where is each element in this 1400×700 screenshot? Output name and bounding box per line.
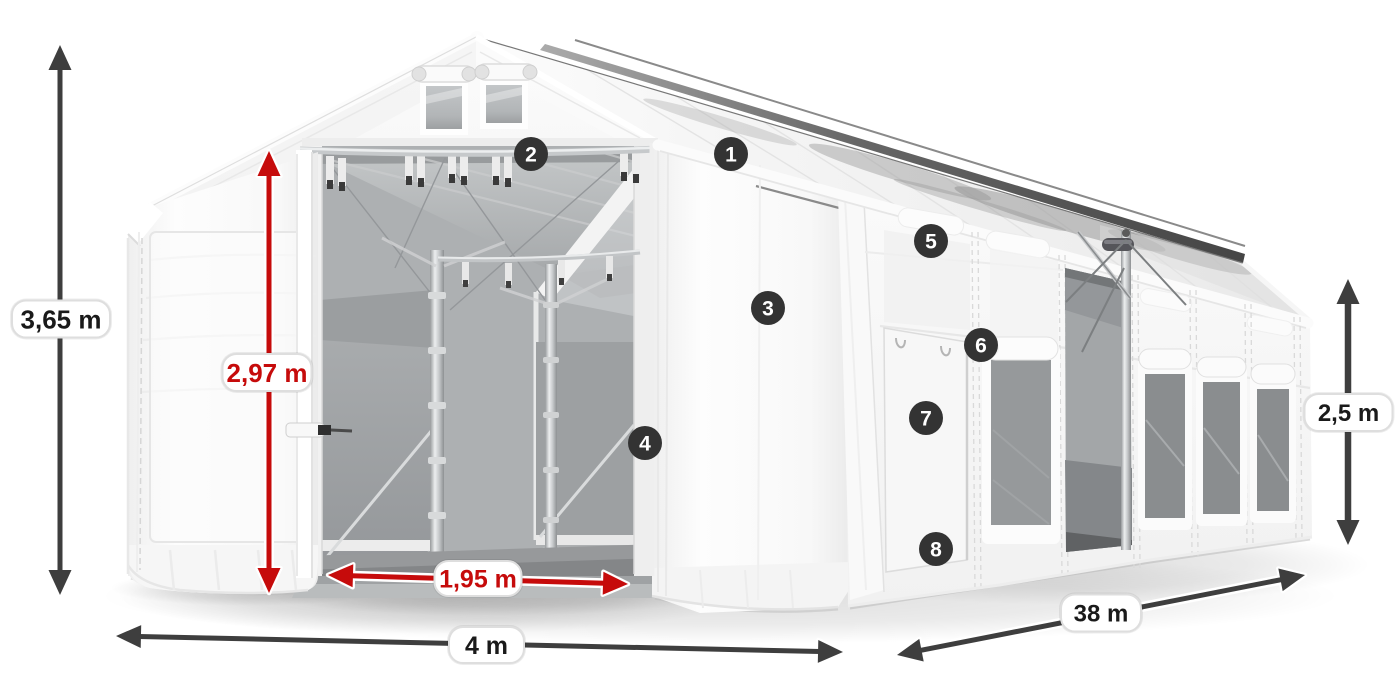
- svg-text:4 m: 4 m: [465, 632, 508, 660]
- svg-text:5: 5: [925, 231, 937, 254]
- svg-text:2,5 m: 2,5 m: [1318, 400, 1379, 427]
- svg-text:1,95 m: 1,95 m: [439, 566, 517, 594]
- svg-text:2,97 m: 2,97 m: [227, 358, 308, 388]
- svg-text:6: 6: [975, 335, 987, 358]
- svg-text:3: 3: [762, 298, 774, 321]
- svg-text:7: 7: [920, 408, 932, 431]
- svg-text:2: 2: [525, 144, 537, 167]
- svg-text:3,65 m: 3,65 m: [21, 304, 102, 334]
- svg-text:38 m: 38 m: [1074, 601, 1129, 628]
- svg-text:8: 8: [930, 539, 942, 562]
- svg-text:4: 4: [639, 433, 651, 456]
- svg-text:1: 1: [725, 144, 737, 167]
